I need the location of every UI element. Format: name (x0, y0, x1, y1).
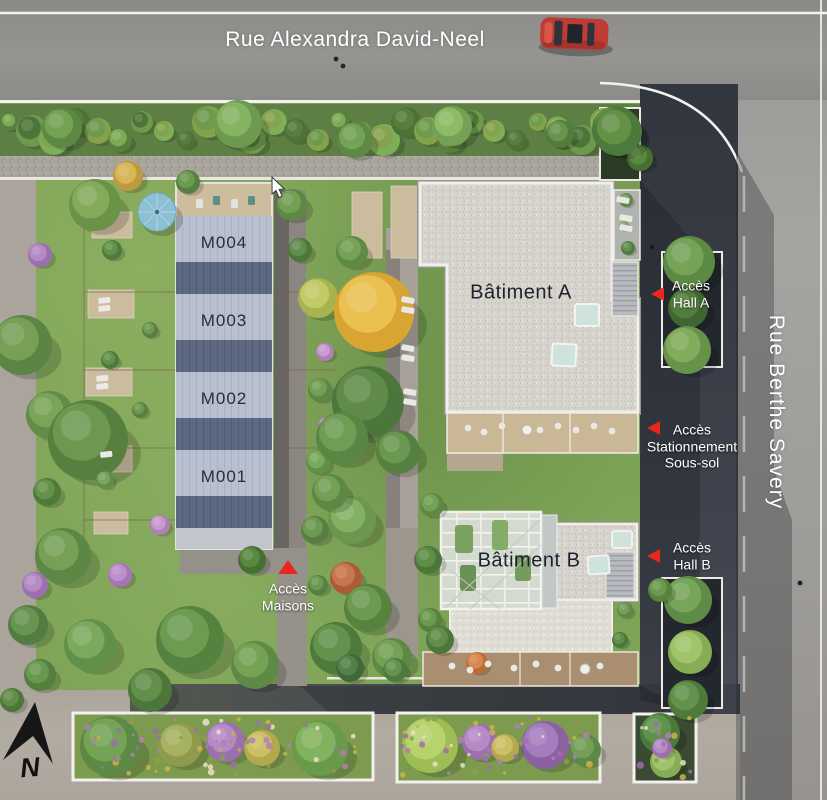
red-car (539, 17, 614, 58)
batiment-b-roof (441, 512, 637, 652)
access-parking-label: Accès Stationnement Sous-sol (647, 421, 737, 471)
street-name-right: Rue Berthe Savery (764, 315, 788, 509)
access-hall-a-label: Accès Hall A (672, 278, 710, 311)
terrace-row-b (423, 652, 638, 686)
maison-m002-label: M002 (201, 389, 248, 409)
batiment-b-label: Bâtiment B (478, 550, 581, 573)
batiment-a-label: Bâtiment A (470, 282, 572, 305)
access-hall-a-arrow-icon (651, 287, 664, 301)
site-plan-canvas (0, 0, 827, 800)
maison-m003-label: M003 (201, 311, 248, 331)
access-hall-b-label: Accès Hall B (673, 540, 711, 573)
north-label: N (19, 752, 41, 785)
maison-m004-label: M004 (201, 233, 248, 253)
street-name-top: Rue Alexandra David-Neel (225, 28, 484, 52)
access-parking-arrow-icon (647, 421, 660, 435)
access-maisons-arrow-icon (278, 560, 298, 574)
access-hall-b-arrow-icon (647, 549, 660, 563)
access-maisons-label: Accès Maisons (262, 581, 314, 614)
site-plan: Rue Alexandra David-Neel Rue Berthe Save… (0, 0, 827, 800)
maison-m001-label: M001 (201, 467, 248, 487)
